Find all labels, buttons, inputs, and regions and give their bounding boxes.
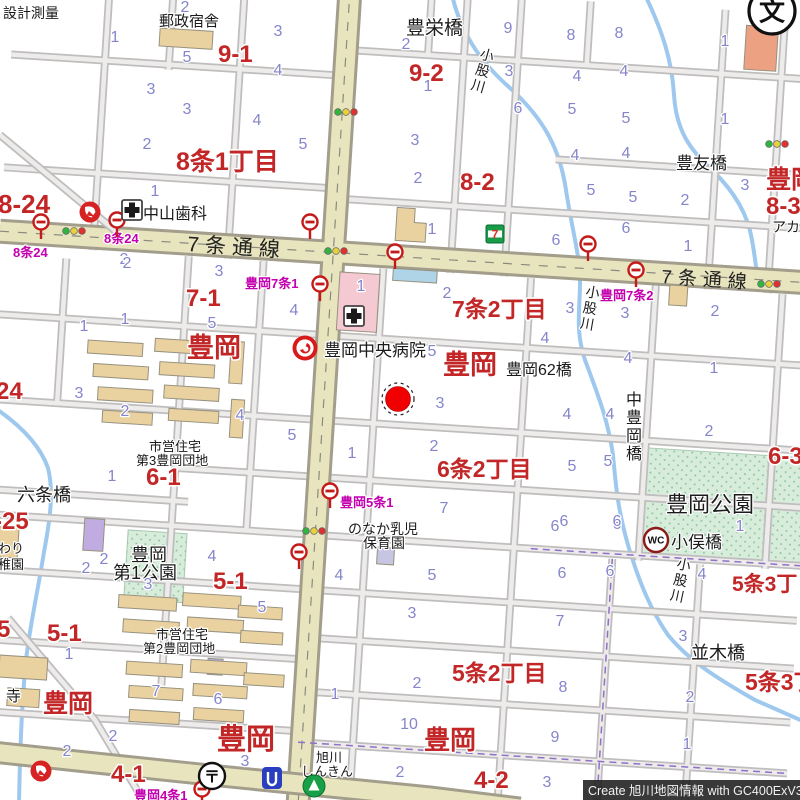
facility-label: 豊栄橋 — [406, 17, 463, 39]
block-number: 2 — [121, 403, 130, 420]
block-number: 5 — [629, 189, 638, 206]
block-number: 1 — [721, 33, 730, 50]
block-number: 4 — [624, 350, 633, 367]
block-number: 4 — [573, 68, 582, 85]
facility-label: 第2豊岡団地 — [143, 641, 215, 656]
block-number: 3 — [621, 305, 630, 322]
facility-label: アカ — [772, 219, 800, 235]
facility-label: 設計測量 — [3, 5, 59, 21]
block-number: 1 — [683, 736, 692, 753]
block-number: 4 — [606, 406, 615, 423]
district-label: 豊岡 — [424, 725, 476, 755]
building-postal-dorm — [159, 28, 213, 49]
block-number: 3 — [241, 753, 250, 770]
bank-icon — [303, 775, 325, 797]
block-number: 1 — [424, 78, 433, 95]
busstop-label: 8条24 — [104, 231, 139, 246]
busstop-label: 豊岡5条1 — [340, 495, 393, 510]
block-number: 2 — [100, 551, 109, 568]
district-label: 6条2丁目 — [437, 456, 532, 482]
busstop-label: 8条24 — [13, 245, 48, 260]
district-label: 9-1 — [218, 41, 253, 68]
block-number: 5 — [568, 101, 577, 118]
block-number: 1 — [348, 445, 357, 462]
district-label: 8-2 — [460, 169, 495, 196]
traffic-icon — [766, 141, 789, 148]
block-number: 1 — [710, 360, 719, 377]
block-number: 3 — [274, 23, 283, 40]
block-number: 3 — [183, 101, 192, 118]
block-number: 1 — [684, 238, 693, 255]
facility-label: 六条橋 — [17, 485, 71, 505]
district-label: -25 — [0, 508, 29, 535]
block-number: 3 — [566, 300, 575, 317]
apartment-building — [93, 363, 149, 379]
block-number: 2 — [143, 136, 152, 153]
facility-label: わり — [0, 541, 24, 556]
block-number: 2 — [414, 170, 423, 187]
traffic-icon — [303, 528, 326, 535]
block-number: 5 — [428, 567, 437, 584]
block-number: 2 — [63, 743, 72, 760]
svg-text:WC: WC — [648, 536, 665, 547]
district-label: 7条2丁目 — [452, 296, 547, 322]
block-number: 4 — [236, 407, 245, 424]
block-number: 10 — [400, 716, 418, 733]
block-number: 2 — [681, 192, 690, 209]
svg-text:文: 文 — [759, 0, 786, 26]
facility-label: 第3豊岡団地 — [136, 453, 208, 468]
busstop-label: 豊岡7条2 — [600, 288, 653, 303]
block-number: 3 — [411, 132, 420, 149]
block-number: 2 — [82, 560, 91, 577]
apartment-building — [164, 385, 220, 401]
block-number: 1 — [65, 646, 74, 663]
district-label: 5条3丁目 — [745, 669, 800, 695]
apartment-building — [240, 630, 283, 645]
district-label: 5条2丁目 — [452, 660, 547, 686]
block-number: 3 — [679, 628, 688, 645]
district-label: 豊岡 — [443, 350, 497, 380]
district-label: 5-1 — [213, 568, 248, 595]
block-number: 5 — [288, 427, 297, 444]
block-number: 3 — [436, 395, 445, 412]
block-number: 1 — [108, 468, 117, 485]
block-number: 3 — [75, 385, 84, 402]
block-number: 4 — [571, 147, 580, 164]
district-label: 5条3丁目 — [732, 572, 800, 596]
block-number: 4 — [290, 302, 299, 319]
cross-icon — [344, 306, 364, 326]
facility-label: 市営住宅 — [149, 439, 201, 454]
block-number: 5 — [568, 458, 577, 475]
block-number: 1 — [111, 29, 120, 46]
block-number: 6 — [558, 565, 567, 582]
block-number: 1 — [121, 311, 130, 328]
facility-label: 豊岡62橋 — [506, 361, 572, 379]
facility-label: 中山歯科 — [143, 205, 207, 223]
apartment-building — [97, 387, 153, 403]
school-icon: 文 — [749, 0, 795, 34]
building-kindergarten — [83, 518, 105, 551]
district-label: 5 — [0, 616, 10, 643]
block-number: 1 — [151, 183, 160, 200]
block-number: 2 — [181, 0, 190, 16]
block-number: 9 — [551, 729, 560, 746]
block-number: 5 — [183, 49, 192, 66]
district-label: 豊岡 — [187, 333, 241, 363]
seven-icon: 7 — [486, 225, 504, 243]
block-number: 3 — [147, 81, 156, 98]
block-number: 3 — [144, 576, 153, 593]
watermark: Create 旭川地図情報 with GC400ExV3 — [583, 780, 800, 800]
block-number: 7 — [440, 500, 449, 517]
facility-label: 小俣橋 — [671, 533, 722, 552]
district-label: 6-1 — [146, 464, 181, 491]
block-number: 5 — [428, 343, 437, 360]
building-blue — [393, 268, 438, 283]
block-number: 4 — [335, 567, 344, 584]
block-number: 5 — [587, 182, 596, 199]
block-number: 4 — [541, 330, 550, 347]
block-number: 6 — [551, 518, 560, 535]
block-number: 2 — [413, 675, 422, 692]
building-temple — [0, 655, 48, 680]
block-number: 4 — [563, 406, 572, 423]
district-label: 6-3 — [768, 443, 800, 470]
apartment-building — [87, 340, 143, 356]
apartment-building — [168, 408, 219, 423]
svg-text:7: 7 — [492, 227, 499, 241]
facility-label: 保育園 — [363, 535, 405, 551]
facility-label: 市営住宅 — [156, 627, 208, 642]
hospital-icon — [293, 336, 318, 361]
district-label: 24 — [0, 378, 23, 405]
block-number: 2 — [109, 728, 118, 745]
busstop-label: 豊岡7条1 — [245, 276, 298, 291]
facility-label: 豊岡中央病院 — [324, 341, 426, 360]
block-number: 1 — [357, 278, 366, 295]
map-image: 9-19-28-248条1丁目8-2豊岡8-37-17条2丁目豊岡豊岡246-1… — [0, 0, 800, 800]
busstop-label: 豊岡4条1 — [134, 788, 187, 800]
traffic-icon — [758, 281, 781, 288]
block-number: 2 — [686, 689, 695, 706]
block-number: 4 — [274, 62, 283, 79]
traffic-icon — [325, 248, 348, 255]
block-number: 5 — [622, 110, 631, 127]
block-number: 2 — [430, 438, 439, 455]
district-label: 4-1 — [111, 761, 146, 788]
facility-label: 豊岡 — [131, 545, 167, 565]
block-number: 1 — [721, 111, 730, 128]
district-label: 7-1 — [186, 285, 221, 312]
block-number: 5 — [299, 136, 308, 153]
cross-icon — [122, 200, 142, 220]
map-canvas[interactable]: 9-19-28-248条1丁目8-2豊岡8-37-17条2丁目豊岡豊岡246-1… — [0, 0, 800, 800]
block-number: 1 — [80, 318, 89, 335]
block-number: 6 — [214, 691, 223, 708]
wc-icon: WC — [644, 528, 668, 552]
facility-label: 寺 — [6, 688, 21, 705]
block-number: 4 — [622, 145, 631, 162]
block-number: 9 — [504, 20, 513, 37]
block-number: 5 — [604, 453, 613, 470]
block-number: 6 — [560, 513, 569, 530]
facility-label: 旭川 — [316, 750, 342, 765]
block-number: 7 — [556, 613, 565, 630]
district-label: 5-1 — [47, 620, 82, 647]
facility-label: 稚園 — [0, 557, 24, 572]
block-number: 5 — [208, 315, 217, 332]
block-number: 3 — [505, 63, 514, 80]
block-number: 1 — [331, 686, 340, 703]
apartment-building — [129, 709, 180, 724]
block-number: 8 — [567, 27, 576, 44]
apartment-building — [244, 673, 285, 688]
block-number: 8 — [559, 679, 568, 696]
block-number: 2 — [443, 285, 452, 302]
post-icon: 〒 — [199, 763, 225, 789]
block-number: 3 — [215, 263, 224, 280]
hydrant-icon — [80, 202, 101, 223]
hydrant-icon — [31, 761, 52, 782]
facility-label: 豊岡公園 — [666, 492, 754, 517]
block-number: 2 — [705, 423, 714, 440]
block-number: 2 — [396, 764, 405, 781]
facility-label: 並木橋 — [691, 643, 745, 663]
block-number: 6 — [552, 232, 561, 249]
block-number: 6 — [622, 220, 631, 237]
block-number: 8 — [615, 25, 624, 42]
block-number: 2 — [402, 36, 411, 53]
block-number: 4 — [620, 63, 629, 80]
block-number: 3 — [741, 177, 750, 194]
block-number: 6 — [613, 513, 622, 530]
district-label: 4-2 — [474, 767, 509, 794]
district-label: 豊岡 — [43, 690, 93, 718]
district-label: 豊岡 — [766, 166, 800, 194]
apartment-building — [193, 708, 244, 723]
block-number: 4 — [208, 548, 217, 565]
traffic-icon — [63, 228, 86, 235]
watermark-text: Create 旭川地図情報 with GC400ExV3 — [588, 784, 800, 798]
block-number: 3 — [543, 774, 552, 791]
block-number: 3 — [408, 605, 417, 622]
apartment-building — [159, 362, 215, 378]
svg-text:〒: 〒 — [204, 769, 220, 786]
block-number: 2 — [123, 255, 132, 272]
block-number: 4 — [253, 112, 262, 129]
blueicon-icon — [262, 767, 282, 789]
district-label: 8-3 — [766, 193, 800, 220]
district-label: 豊岡 — [217, 723, 275, 756]
block-number: 2 — [711, 303, 720, 320]
block-number: 1 — [428, 221, 437, 238]
block-number: 4 — [698, 566, 707, 583]
facility-label: 豊友橋 — [676, 154, 727, 173]
block-number: 7 — [152, 683, 161, 700]
block-number: 6 — [606, 563, 615, 580]
traffic-icon — [335, 109, 358, 116]
block-number: 5 — [258, 599, 267, 616]
block-number: 6 — [514, 100, 523, 117]
district-label: 8条1丁目 — [176, 148, 279, 176]
block-number: 1 — [736, 518, 745, 535]
